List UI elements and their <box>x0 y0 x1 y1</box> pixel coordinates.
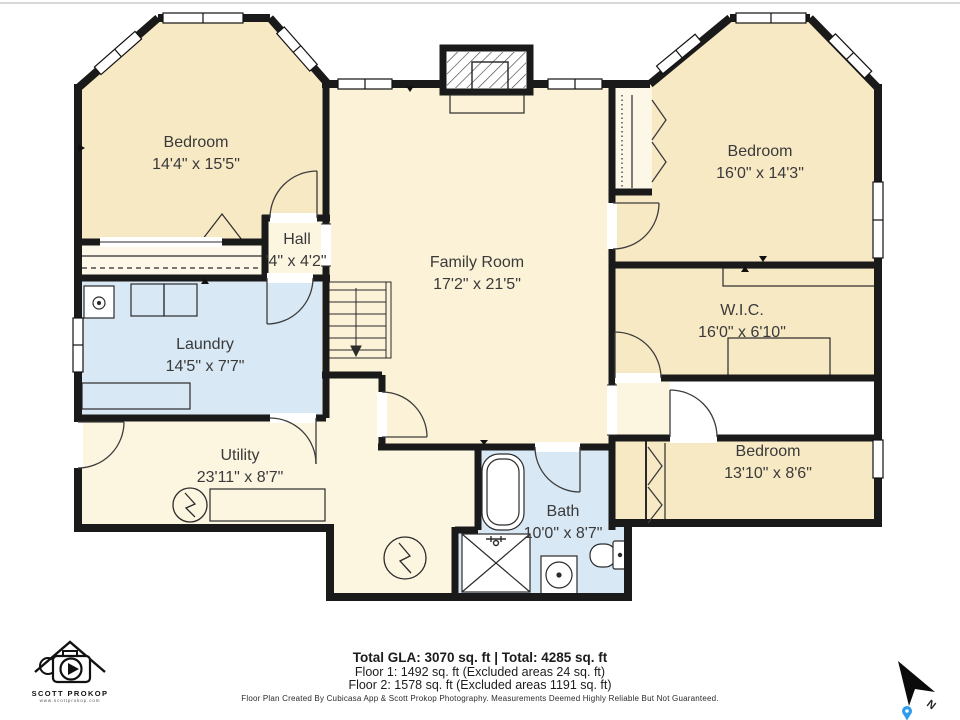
map-pin-icon <box>902 706 912 720</box>
dims-utility: 23'11" x 8'7" <box>197 469 284 486</box>
logo-url-text: www.scottprokop.com <box>20 698 120 703</box>
shower <box>462 534 530 592</box>
window-family-right <box>548 79 602 89</box>
dims-bedroom-tl: 14'4" x 15'5" <box>152 156 240 173</box>
dims-bath: 10'0" x 8'7" <box>524 525 603 542</box>
logo-name-text: SCOTT PROKOP <box>20 689 120 698</box>
dims-bedroom-tr: 16'0" x 14'3" <box>716 165 804 182</box>
bath-sink-drain <box>557 573 561 577</box>
footer-floor2: Floor 2: 1578 sq. ft (Excluded areas 119… <box>0 678 960 692</box>
window-east-bedroom-br <box>873 440 883 478</box>
window-bay-tl-top <box>163 13 243 23</box>
window-bay-tr-top <box>736 13 806 23</box>
photographer-logo: SCOTT PROKOP www.scottprokop.com <box>20 634 120 703</box>
dims-hall: '4" x 4'2" <box>265 253 326 270</box>
label-laundry: Laundry <box>176 336 234 353</box>
dims-family-room: 17'2" x 21'5" <box>433 276 521 293</box>
label-bath: Bath <box>547 503 580 520</box>
label-bedroom-tr: Bedroom <box>728 143 793 160</box>
footer-disclaimer: Floor Plan Created By Cubicasa App & Sco… <box>0 694 960 703</box>
floor-plan-canvas: Bedroom 14'4" x 15'5" Bedroom 16'0" x 14… <box>0 0 960 720</box>
toilet <box>590 541 626 569</box>
label-hall: Hall <box>283 231 311 248</box>
label-utility: Utility <box>220 447 259 464</box>
floor-plan-page: Bedroom 14'4" x 15'5" Bedroom 16'0" x 14… <box>0 0 960 720</box>
vestibule <box>612 378 670 438</box>
hearth <box>450 95 524 113</box>
footer-totals: Total GLA: 3070 sq. ft | Total: 4285 sq.… <box>0 650 960 665</box>
fireplace <box>443 48 530 113</box>
laundry-sink-drain <box>98 302 101 305</box>
frame-top-line <box>0 2 960 4</box>
window-family-left <box>338 79 392 89</box>
dims-laundry: 14'5" x 7'7" <box>166 358 245 375</box>
window-west-laundry <box>73 318 83 372</box>
dims-wic: 16'0" x 6'10" <box>698 324 786 341</box>
door-bedroom-br <box>670 390 717 437</box>
room-wic <box>612 265 878 378</box>
label-wic: W.I.C. <box>720 302 764 319</box>
north-label: N <box>924 698 938 712</box>
footer-floor1: Floor 1: 1492 sq. ft (Excluded areas 24 … <box>0 665 960 679</box>
window-east-bedroom-tr <box>873 182 883 258</box>
label-family-room: Family Room <box>430 254 524 271</box>
label-bedroom-br: Bedroom <box>736 443 801 460</box>
closet-top-left <box>78 242 265 278</box>
north-arrow: N <box>878 645 948 720</box>
label-bedroom-tl: Bedroom <box>164 134 229 151</box>
dims-bedroom-br: 13'10" x 8'6" <box>724 465 812 482</box>
logo-graphic <box>25 634 115 686</box>
